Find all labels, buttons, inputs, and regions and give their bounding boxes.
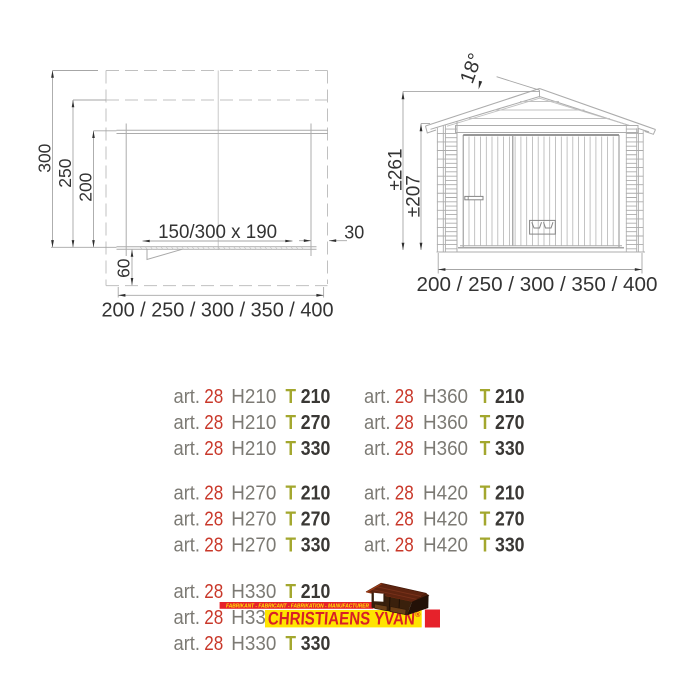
svg-text:330: 330 [301, 438, 331, 460]
svg-text:150/300 x 190: 150/300 x 190 [158, 222, 277, 243]
svg-text:330: 330 [301, 534, 331, 556]
svg-text:28: 28 [204, 438, 223, 460]
svg-text:28: 28 [204, 633, 223, 655]
svg-text:T: T [286, 386, 297, 408]
svg-text:H420: H420 [423, 534, 468, 556]
svg-text:art.: art. [174, 581, 201, 603]
svg-text:H330: H330 [231, 581, 276, 603]
svg-text:art.: art. [364, 412, 391, 434]
svg-text:210: 210 [301, 581, 331, 603]
svg-text:T: T [480, 412, 491, 434]
svg-text:art.: art. [364, 508, 391, 530]
svg-text:art.: art. [364, 534, 391, 556]
svg-text:T: T [286, 534, 297, 556]
svg-text:T: T [286, 508, 297, 530]
svg-text:H210: H210 [231, 438, 276, 460]
svg-text:28: 28 [395, 386, 414, 408]
svg-text:200 / 250 / 300 / 350 / 400: 200 / 250 / 300 / 350 / 400 [102, 300, 334, 322]
svg-text:art.: art. [364, 438, 391, 460]
svg-text:28: 28 [204, 386, 223, 408]
svg-text:T: T [480, 386, 491, 408]
svg-text:T: T [286, 412, 297, 434]
svg-text:T: T [286, 482, 297, 504]
svg-text:210: 210 [495, 482, 525, 504]
svg-text:28: 28 [204, 534, 223, 556]
svg-text:330: 330 [495, 438, 525, 460]
svg-text:270: 270 [301, 508, 331, 530]
svg-text:210: 210 [495, 386, 525, 408]
svg-text:art.: art. [364, 482, 391, 504]
svg-text:330: 330 [301, 633, 331, 655]
svg-text:art.: art. [174, 386, 201, 408]
svg-text:art.: art. [174, 607, 201, 629]
svg-text:H420: H420 [423, 482, 468, 504]
svg-text:30: 30 [344, 222, 364, 242]
svg-text:H270: H270 [231, 534, 276, 556]
svg-text:60: 60 [114, 258, 134, 278]
svg-text:H330: H330 [231, 633, 276, 655]
svg-text:®: ® [415, 611, 421, 619]
svg-text:28: 28 [395, 534, 414, 556]
svg-text:28: 28 [204, 508, 223, 530]
svg-text:T: T [480, 438, 491, 460]
svg-text:T: T [480, 534, 491, 556]
svg-text:T: T [286, 581, 297, 603]
svg-text:28: 28 [395, 438, 414, 460]
svg-text:art.: art. [174, 412, 201, 434]
svg-text:H360: H360 [423, 386, 468, 408]
svg-text:28: 28 [204, 581, 223, 603]
svg-text:H210: H210 [231, 386, 276, 408]
svg-text:H270: H270 [231, 508, 276, 530]
svg-text:28: 28 [395, 482, 414, 504]
svg-text:250: 250 [55, 158, 75, 187]
svg-text:T: T [286, 438, 297, 460]
svg-text:200 / 250 / 300 / 350 / 400: 200 / 250 / 300 / 350 / 400 [417, 274, 658, 296]
svg-text:28: 28 [204, 412, 223, 434]
svg-text:T: T [480, 508, 491, 530]
svg-text:art.: art. [174, 438, 201, 460]
svg-text:T: T [480, 482, 491, 504]
svg-text:330: 330 [495, 534, 525, 556]
svg-text:270: 270 [495, 508, 525, 530]
svg-text:art.: art. [174, 482, 201, 504]
svg-text:28: 28 [395, 508, 414, 530]
svg-text:270: 270 [495, 412, 525, 434]
svg-text:H210: H210 [231, 412, 276, 434]
svg-text:art.: art. [174, 508, 201, 530]
svg-text:300: 300 [35, 143, 55, 172]
svg-text:28: 28 [395, 412, 414, 434]
svg-text:H270: H270 [231, 482, 276, 504]
svg-text:210: 210 [301, 386, 331, 408]
svg-text:28: 28 [204, 482, 223, 504]
svg-text:H360: H360 [423, 438, 468, 460]
svg-text:28: 28 [204, 607, 223, 629]
svg-text:210: 210 [301, 482, 331, 504]
svg-text:art.: art. [364, 386, 391, 408]
svg-text:270: 270 [301, 412, 331, 434]
svg-text:art.: art. [174, 534, 201, 556]
svg-text:±207: ±207 [404, 175, 425, 217]
svg-text:art.: art. [174, 633, 201, 655]
svg-text:H420: H420 [423, 508, 468, 530]
svg-text:200: 200 [76, 172, 96, 201]
svg-text:T: T [286, 633, 297, 655]
svg-text:H360: H360 [423, 412, 468, 434]
